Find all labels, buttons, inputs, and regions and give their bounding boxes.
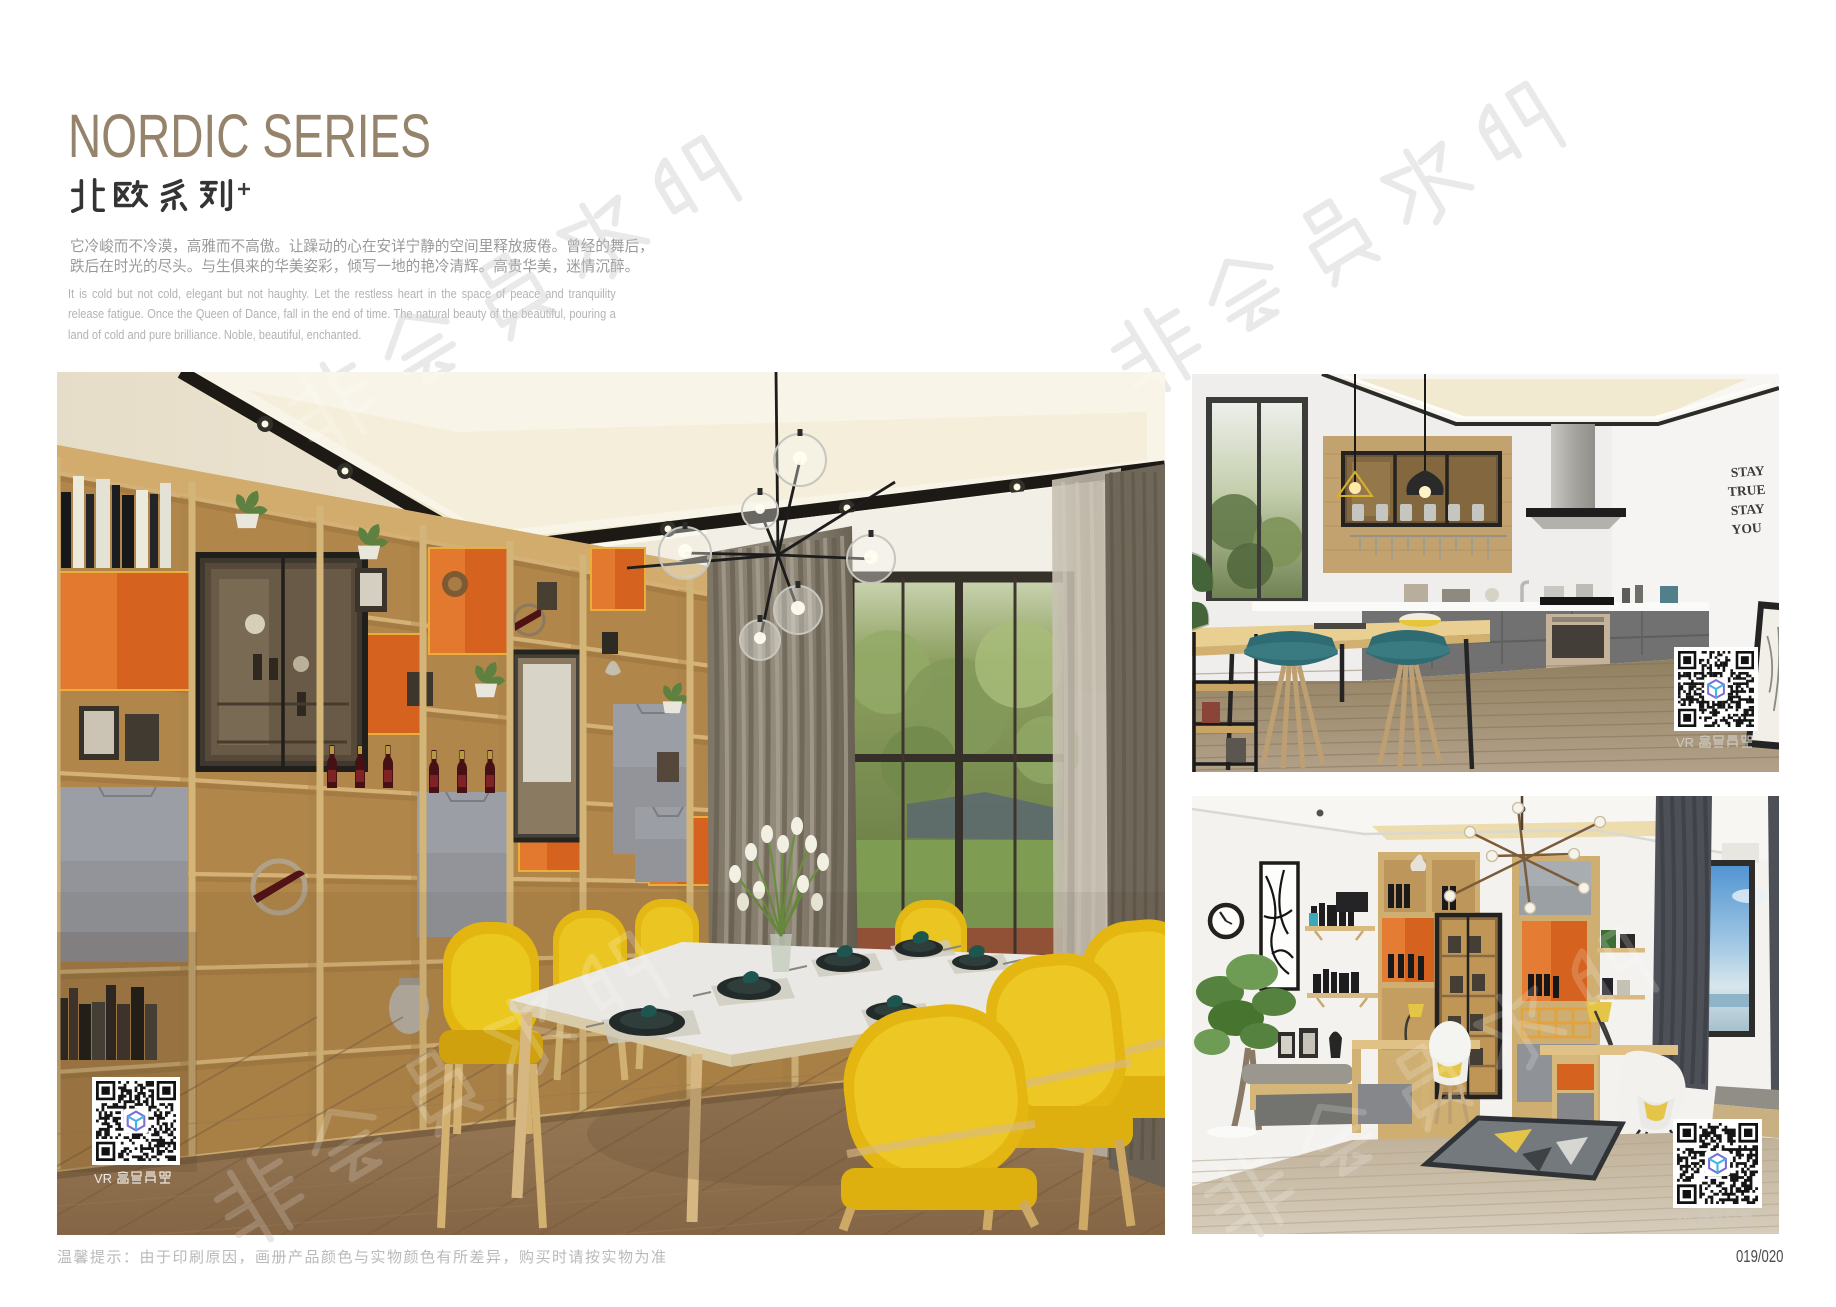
svg-text:YOU: YOU	[1731, 520, 1762, 537]
svg-text:STAY: STAY	[1730, 463, 1765, 480]
svg-text:VR: VR	[1676, 735, 1694, 750]
svg-text:VR: VR	[94, 1171, 112, 1186]
svg-text:VR: VR	[1675, 1209, 1693, 1224]
svg-text:STAY: STAY	[1730, 501, 1765, 518]
svg-text:TRUE: TRUE	[1727, 482, 1765, 500]
